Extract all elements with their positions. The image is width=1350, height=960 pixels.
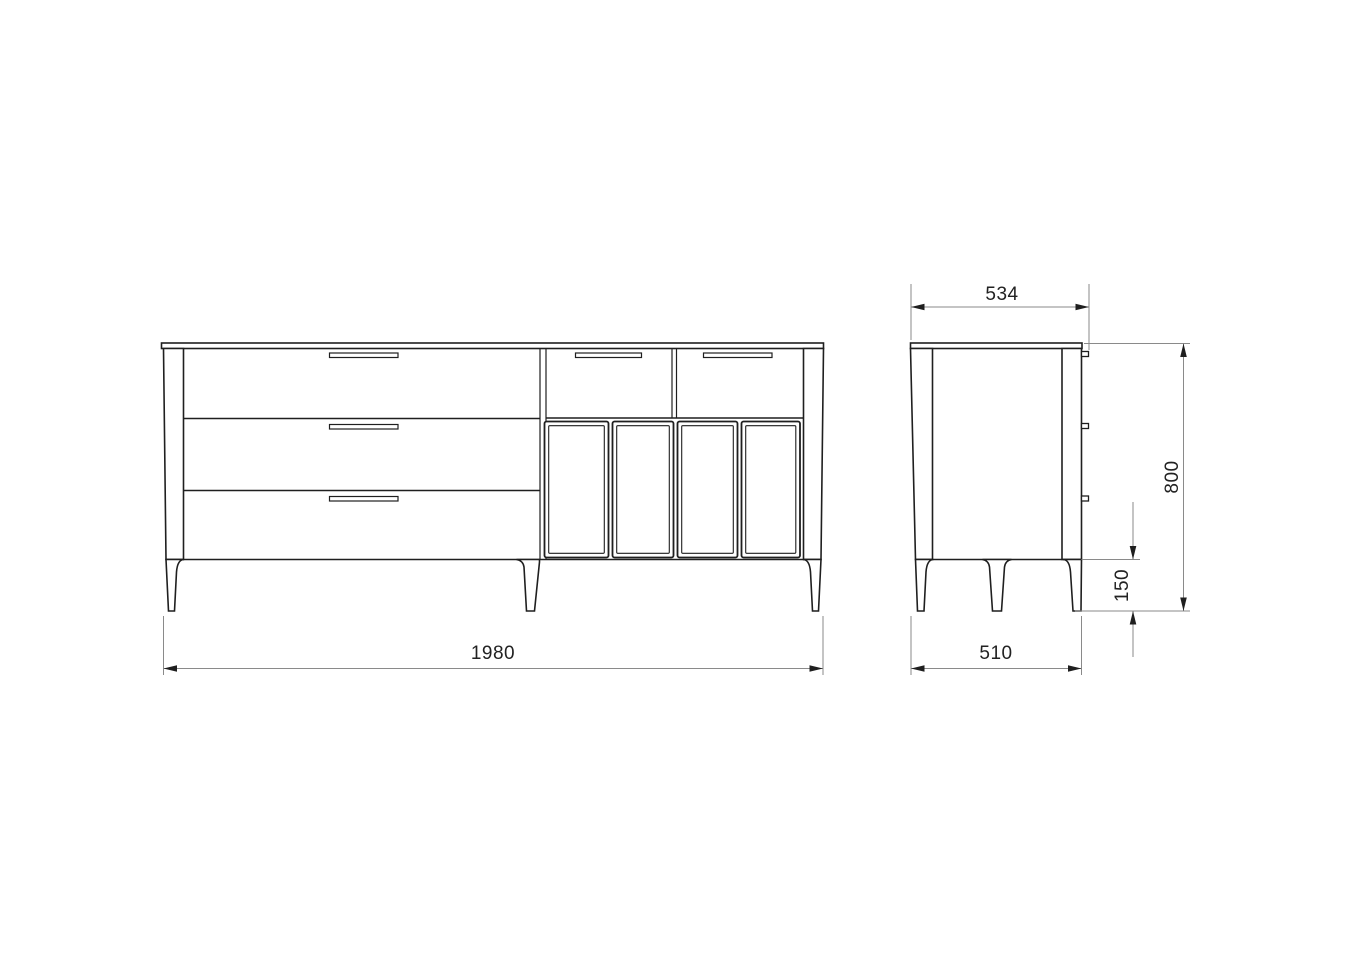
door-panels	[545, 422, 801, 558]
door-panel	[678, 422, 738, 558]
front-view: 1980	[162, 343, 824, 675]
arrowhead-right	[810, 665, 824, 672]
front-top-panel	[162, 343, 824, 349]
drawer-handle	[330, 425, 399, 430]
arrowhead-top	[1130, 546, 1137, 560]
side-front-panel	[1062, 349, 1082, 560]
dimension-overall-width: 1980	[164, 616, 824, 675]
drawer-front-edge	[1082, 496, 1089, 501]
technical-drawing-page: 1980	[0, 0, 1350, 960]
arrowhead-top	[1180, 344, 1187, 358]
dimension-top-depth: 534	[911, 284, 1089, 350]
arrowhead-right	[1068, 665, 1082, 672]
arrowhead-left	[911, 304, 925, 311]
dimension-label: 800	[1162, 460, 1183, 493]
drawer-handle	[704, 353, 773, 358]
door-panel	[613, 422, 674, 558]
arrowhead-left	[164, 665, 178, 672]
front-right-leg	[803, 560, 821, 612]
dimension-label: 510	[979, 643, 1012, 664]
front-right-side-panel	[804, 349, 824, 560]
arrowhead-left	[911, 665, 925, 672]
front-left-side-panel	[164, 349, 184, 560]
drawer-front-edge	[1082, 352, 1089, 357]
dimension-label: 1980	[471, 643, 515, 664]
dimension-leg-height: 150	[1082, 502, 1141, 657]
side-view: 534 800 150	[911, 284, 1191, 675]
door-panel	[742, 422, 801, 558]
side-back-panel	[911, 349, 933, 560]
dimension-label: 534	[985, 284, 1018, 305]
door-panel	[545, 422, 609, 558]
side-back-leg	[916, 560, 934, 612]
drawer-handle	[576, 353, 642, 358]
side-top-panel	[911, 343, 1083, 349]
side-middle-leg	[983, 560, 1012, 612]
arrowhead-bottom	[1180, 598, 1187, 612]
dimension-body-depth: 510	[911, 616, 1082, 675]
front-middle-leg	[517, 560, 540, 612]
drawer-handle	[330, 353, 399, 358]
side-front-leg	[1063, 560, 1082, 612]
drawer-front-edge	[1082, 424, 1089, 429]
sideboard-technical-drawing: 1980	[0, 0, 1350, 960]
front-left-leg	[166, 560, 184, 612]
drawer-handle	[330, 497, 399, 502]
arrowhead-right	[1076, 304, 1090, 311]
arrowhead-bottom	[1130, 611, 1137, 625]
dimension-label: 150	[1112, 569, 1133, 602]
